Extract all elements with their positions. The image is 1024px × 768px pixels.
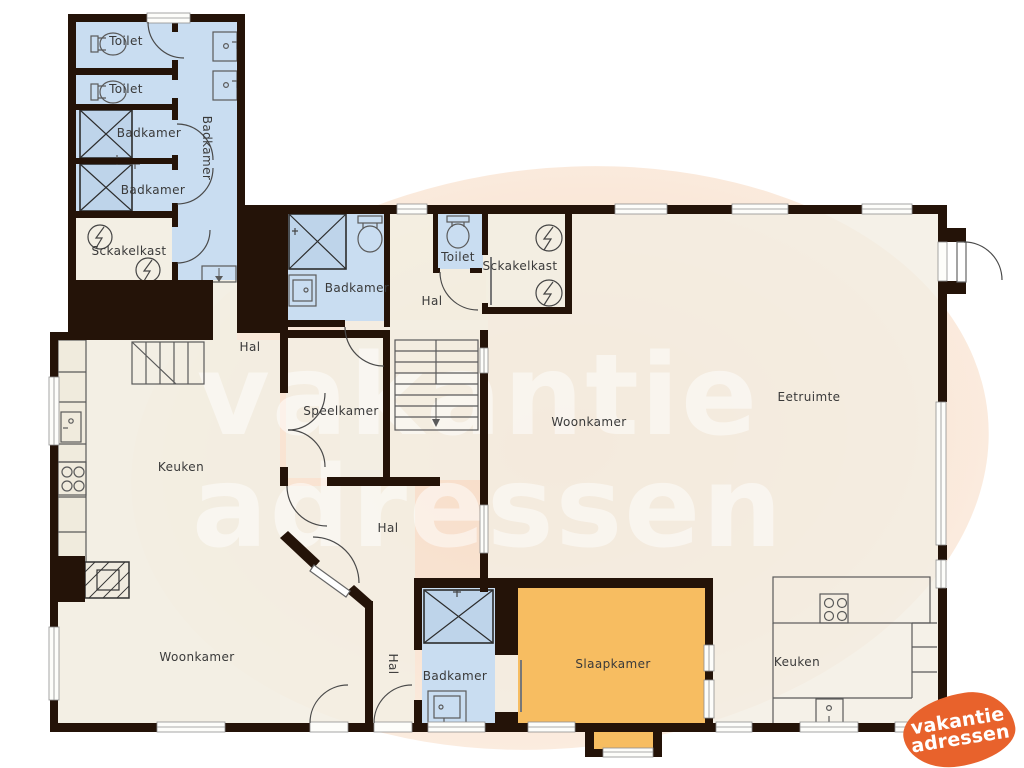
window-icon — [615, 204, 667, 214]
window-icon — [936, 560, 946, 588]
label-toilet-nw-1: Toilet — [109, 34, 143, 48]
label-toilet-nw-2: Toilet — [109, 82, 143, 96]
shower-icon — [424, 590, 493, 643]
label-badkamer-s: Badkamer — [423, 669, 488, 683]
window-icon — [716, 722, 752, 732]
label-hal-s: Hal — [386, 654, 400, 675]
floor-slaapkamer — [518, 588, 706, 723]
label-hal-c: Hal — [378, 521, 399, 535]
label-eetruimte: Eetruimte — [778, 390, 841, 404]
floorplan-page: vakantie adressen — [0, 0, 1024, 768]
window-icon — [49, 377, 59, 445]
window-icon — [480, 348, 488, 373]
label-slaapkamer: Slaapkamer — [575, 657, 650, 671]
label-keuken-w: Keuken — [158, 460, 204, 474]
label-badkamer-nw-1: Badkamer — [117, 126, 182, 140]
label-schakelkast-nw: Sckakelkast — [92, 244, 167, 258]
fireplace — [85, 562, 129, 598]
label-hal-n: Hal — [422, 294, 443, 308]
window-icon — [49, 627, 59, 700]
window-icon — [862, 204, 912, 214]
door-arc-icon — [964, 242, 1002, 280]
door-leaf — [957, 242, 966, 282]
label-woonkamer-c: Woonkamer — [551, 415, 626, 429]
door-opening — [938, 242, 947, 281]
label-toilet-n: Toilet — [441, 250, 475, 264]
door-opening — [310, 722, 348, 732]
window-icon — [480, 505, 488, 553]
window-icon — [428, 722, 485, 732]
label-speelkamer: Speelkamer — [303, 404, 378, 418]
window-icon — [704, 680, 714, 718]
label-badkamer-nw-2: Badkamer — [121, 183, 186, 197]
label-hal-w: Hal — [240, 340, 261, 354]
window-icon — [147, 13, 190, 23]
window-icon — [603, 748, 653, 757]
label-schakelkast-c: Sckakelkast — [483, 259, 558, 273]
floorplan-drawing: vakantie adressen — [0, 0, 1024, 768]
window-icon — [704, 645, 714, 671]
kitchen-counter — [58, 340, 86, 562]
window-icon — [528, 722, 575, 732]
shower-icon — [289, 214, 346, 269]
window-icon — [397, 204, 427, 214]
door-opening — [374, 722, 412, 732]
window-icon — [800, 722, 858, 732]
label-badkamer-nw-hall: Badkamer — [200, 116, 214, 181]
label-badkamer-n: Badkamer — [325, 281, 390, 295]
window-icon — [936, 402, 946, 545]
label-keuken-se: Keuken — [774, 655, 820, 669]
label-woonkamer-sw: Woonkamer — [159, 650, 234, 664]
window-icon — [157, 722, 225, 732]
window-icon — [732, 204, 788, 214]
